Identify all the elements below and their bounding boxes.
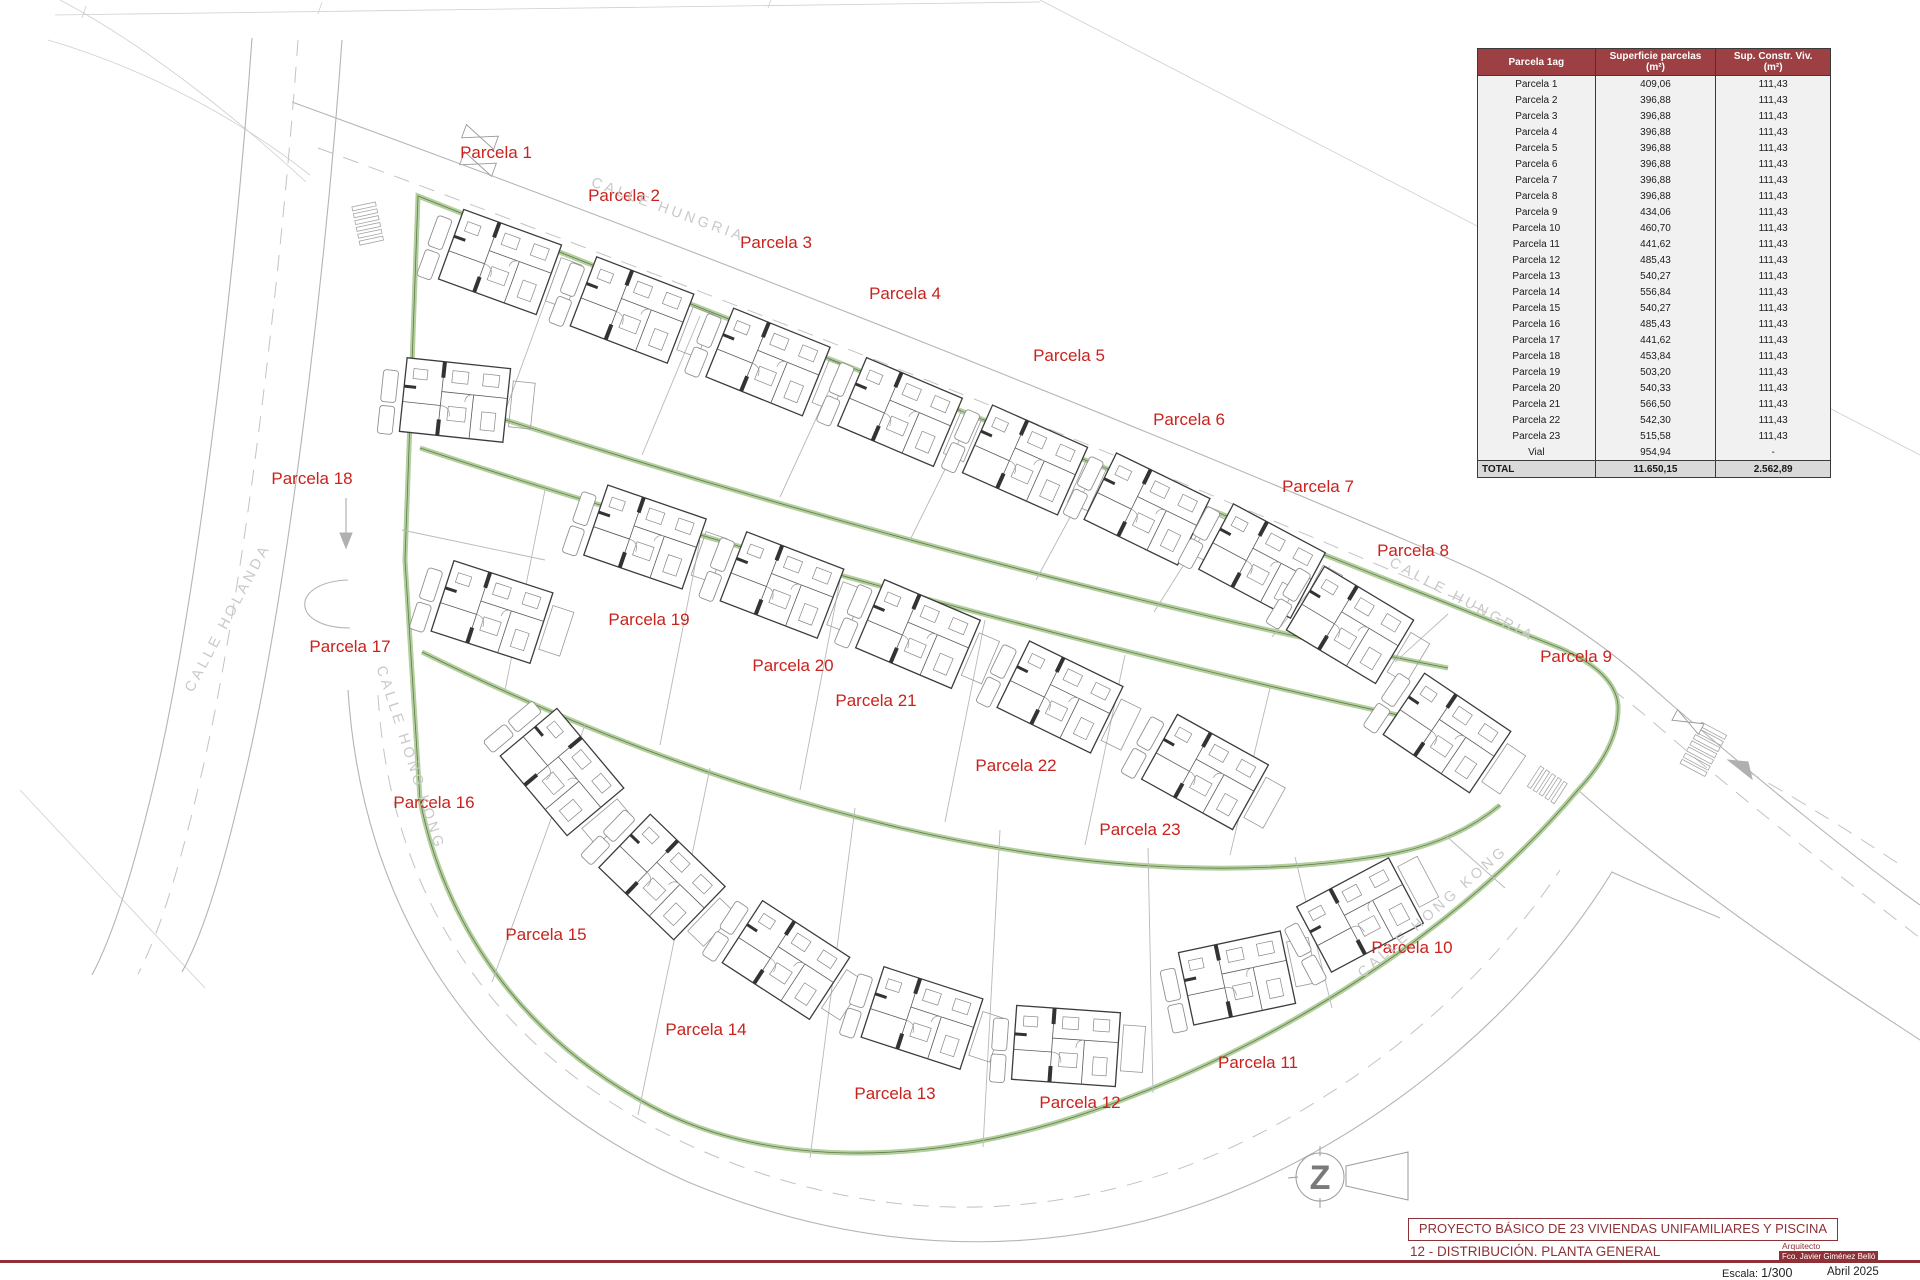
- architect-label: Arquitecto: [1782, 1241, 1820, 1251]
- table-row: Parcela 19503,20111,43: [1478, 364, 1831, 380]
- date-text: Abril 2025: [1827, 1266, 1879, 1278]
- table-row: Parcela 15540,27111,43: [1478, 300, 1831, 316]
- column-header-superficie: Superficie parcelas (m²): [1595, 49, 1716, 76]
- table-row: Parcela 18453,84111,43: [1478, 348, 1831, 364]
- table-row: Parcela 12485,43111,43: [1478, 252, 1831, 268]
- table-row: Parcela 16485,43111,43: [1478, 316, 1831, 332]
- column-header-sup-constr: Sup. Constr. Viv. (m²): [1716, 49, 1831, 76]
- north-arrow-letter: Z: [1310, 1159, 1331, 1197]
- table-row: Parcela 7396,88111,43: [1478, 172, 1831, 188]
- table-row: Parcela 10460,70111,43: [1478, 220, 1831, 236]
- table-row: Parcela 21566,50111,43: [1478, 396, 1831, 412]
- scale-text: Escala: 1/300: [1722, 1266, 1792, 1280]
- table-row: Parcela 3396,88111,43: [1478, 108, 1831, 124]
- table-row: Parcela 4396,88111,43: [1478, 124, 1831, 140]
- table-row: Parcela 9434,06111,43: [1478, 204, 1831, 220]
- table-header-row: Parcela 1ag Superficie parcelas (m²) Sup…: [1478, 49, 1831, 76]
- sheet-title: 12 - DISTRIBUCIÓN. PLANTA GENERAL: [1410, 1244, 1660, 1259]
- title-block-rule: [0, 1260, 1920, 1263]
- table-row: Parcela 14556,84111,43: [1478, 284, 1831, 300]
- table-row: Parcela 23515,58111,43: [1478, 428, 1831, 444]
- table-row: Parcela 1409,06111,43: [1478, 76, 1831, 93]
- parcel-area-table: Parcela 1ag Superficie parcelas (m²) Sup…: [1477, 48, 1831, 478]
- table-total-row: TOTAL11.650,152.562,89: [1478, 461, 1831, 478]
- table-row: Vial954,94-: [1478, 444, 1831, 461]
- north-arrow-icon: Z: [1288, 1146, 1408, 1208]
- development-site: [377, 196, 1618, 1158]
- table-row: Parcela 11441,62111,43: [1478, 236, 1831, 252]
- project-title: PROYECTO BÁSICO DE 23 VIVIENDAS UNIFAMIL…: [1408, 1218, 1838, 1241]
- table-row: Parcela 13540,27111,43: [1478, 268, 1831, 284]
- table-row: Parcela 17441,62111,43: [1478, 332, 1831, 348]
- parcel-table-body: Parcela 1409,06111,43Parcela 2396,88111,…: [1478, 76, 1831, 478]
- table-row: Parcela 20540,33111,43: [1478, 380, 1831, 396]
- column-header-parcela: Parcela 1ag: [1478, 49, 1596, 76]
- table-row: Parcela 2396,88111,43: [1478, 92, 1831, 108]
- table-row: Parcela 5396,88111,43: [1478, 140, 1831, 156]
- table-row: Parcela 22542,30111,43: [1478, 412, 1831, 428]
- table-row: Parcela 6396,88111,43: [1478, 156, 1831, 172]
- table-row: Parcela 8396,88111,43: [1478, 188, 1831, 204]
